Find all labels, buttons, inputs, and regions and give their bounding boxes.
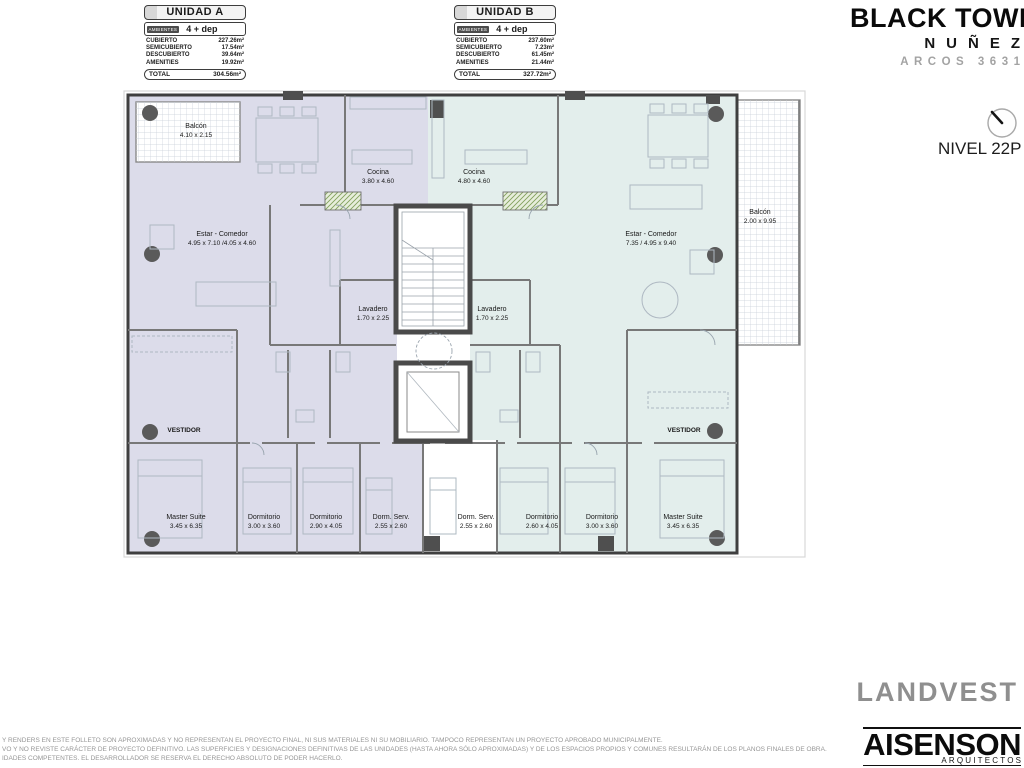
room-label-a-vestidor: VESTIDOR xyxy=(167,427,201,434)
area-row-value: 19.92m² xyxy=(222,60,244,67)
room-dims-a-dorm1: 3.00 x 3.60 xyxy=(248,523,281,530)
room-dims-a-master: 3.45 x 6.35 xyxy=(170,523,203,530)
disclaimer-line: VO Y NO REVISTE CARÁCTER DE PROYECTO DEF… xyxy=(2,746,827,753)
ambientes-value: 4 + dep xyxy=(186,24,217,34)
unit-b-total-row: TOTAL 327.72m² xyxy=(454,69,556,80)
room-dims-b-lavadero: 1.70 x 2.25 xyxy=(476,315,509,322)
room-dims-b-dormserv: 2.55 x 2.60 xyxy=(460,523,493,530)
area-row: DESCUBIERTO 61.45m² xyxy=(456,52,554,59)
room-label-b-dorm2: Dormitorio xyxy=(586,514,618,521)
area-row-label: AMENITIES xyxy=(456,60,489,67)
room-dims-b-balcon: 2.00 x 9.95 xyxy=(744,218,777,225)
unit-a-total-row: TOTAL 304.56m² xyxy=(144,69,246,80)
room-dims-a-dormserv: 2.55 x 2.60 xyxy=(375,523,408,530)
project-title: BLACK TOWER xyxy=(850,4,1020,33)
unit-a-area-rows: CUBIERTO 227.26m² SEMICUBIERTO 17.54m² D… xyxy=(144,36,246,68)
room-label-b-balcon: Balcón xyxy=(749,209,771,216)
room-dims-a-estar: 4.95 x 7.10 /4.05 x 4.60 xyxy=(188,240,256,247)
room-label-b-lavadero: Lavadero xyxy=(477,306,506,313)
ambientes-label: AMBIENTES xyxy=(457,26,490,33)
room-label-b-vestidor: VESTIDOR xyxy=(667,427,701,434)
unit-a-title: UNIDAD A xyxy=(144,5,246,20)
divider xyxy=(863,765,1021,766)
room-label-a-lavadero: Lavadero xyxy=(358,306,387,313)
unit-b-ambientes-row: AMBIENTES 4 + dep xyxy=(454,22,556,36)
disclaimer-line: IDADES COMPETENTES. EL DESARROLLADOR SE … xyxy=(2,755,343,762)
planter-b xyxy=(503,192,547,210)
room-label-a-estar: Estar - Comedor xyxy=(196,231,248,238)
level-label: NIVEL 22P xyxy=(938,139,1021,159)
area-row-label: CUBIERTO xyxy=(146,38,177,45)
area-row-label: SEMICUBIERTO xyxy=(146,45,192,52)
unit-b-title: UNIDAD B xyxy=(454,5,556,20)
area-row-value: 61.45m² xyxy=(532,52,554,59)
room-label-b-cocina: Cocina xyxy=(463,169,485,176)
room-label-b-dorm1: Dormitorio xyxy=(526,514,558,521)
room-label-a-dorm2: Dormitorio xyxy=(310,514,342,521)
area-row-label: AMENITIES xyxy=(146,60,179,67)
floor-plan: Balcón 4.10 x 2.15 Estar - Comedor 4.95 … xyxy=(0,0,1024,768)
area-row-value: 21.44m² xyxy=(532,60,554,67)
ambientes-label: AMBIENTES xyxy=(147,26,180,33)
project-brand: BLACK TOWER NUÑEZ ARCOS 3631 xyxy=(850,4,1020,70)
disclaimer-line: Y RENDERS EN ESTE FOLLETO SON APROXIMADA… xyxy=(2,737,663,744)
area-row: AMENITIES 21.44m² xyxy=(456,60,554,67)
room-label-a-dormserv: Dorm. Serv. xyxy=(373,514,410,521)
unit-b-area-rows: CUBIERTO 237.60m² SEMICUBIERTO 7.23m² DE… xyxy=(454,36,556,68)
aisenson-logo: AISENSON ARQUITECTOS xyxy=(863,729,1021,765)
area-row-label: DESCUBIERTO xyxy=(146,52,190,59)
project-address: ARCOS 3631 xyxy=(850,55,1024,70)
room-dims-b-cocina: 4.80 x 4.60 xyxy=(458,178,491,185)
room-dims-a-dorm2: 2.90 x 4.05 xyxy=(310,523,343,530)
area-row-label: SEMICUBIERTO xyxy=(456,45,502,52)
area-row: DESCUBIERTO 39.64m² xyxy=(146,52,244,59)
room-label-b-estar: Estar - Comedor xyxy=(625,231,677,238)
room-label-a-master: Master Suite xyxy=(166,514,205,521)
unit-b-table: UNIDAD B AMBIENTES 4 + dep CUBIERTO 237.… xyxy=(454,5,556,80)
total-value: 304.56m² xyxy=(213,71,241,78)
north-compass-icon xyxy=(985,106,1019,140)
room-label-a-balcon: Balcón xyxy=(185,123,207,130)
area-row-label: DESCUBIERTO xyxy=(456,52,500,59)
unit-a-table: UNIDAD A AMBIENTES 4 + dep CUBIERTO 227.… xyxy=(144,5,246,80)
ambientes-value: 4 + dep xyxy=(496,24,527,34)
total-value: 327.72m² xyxy=(523,71,551,78)
total-label: TOTAL xyxy=(149,71,170,78)
area-row-value: 39.64m² xyxy=(222,52,244,59)
room-dims-a-cocina: 3.80 x 4.60 xyxy=(362,178,395,185)
room-dims-b-estar: 7.35 / 4.95 x 9.40 xyxy=(626,240,677,247)
room-dims-b-master: 3.45 x 6.35 xyxy=(667,523,700,530)
room-dims-b-dorm2: 3.00 x 3.60 xyxy=(586,523,619,530)
unit-a-ambientes-row: AMBIENTES 4 + dep xyxy=(144,22,246,36)
area-row-label: CUBIERTO xyxy=(456,38,487,45)
room-dims-b-dorm1: 2.60 x 4.05 xyxy=(526,523,559,530)
elevator-core xyxy=(396,363,470,441)
room-label-b-master: Master Suite xyxy=(663,514,702,521)
room-label-b-dormserv: Dorm. Serv. xyxy=(458,514,495,521)
room-label-a-cocina: Cocina xyxy=(367,169,389,176)
room-dims-a-balcon: 4.10 x 2.15 xyxy=(180,132,213,139)
brochure-page: Balcón 4.10 x 2.15 Estar - Comedor 4.95 … xyxy=(0,0,1024,768)
stair-core xyxy=(396,206,470,332)
total-label: TOTAL xyxy=(459,71,480,78)
room-dims-a-lavadero: 1.70 x 2.25 xyxy=(357,315,390,322)
landvest-logo: LANDVEST xyxy=(856,677,1018,708)
room-label-a-dorm1: Dormitorio xyxy=(248,514,280,521)
project-subtitle: NUÑEZ xyxy=(850,33,1024,55)
area-row: AMENITIES 19.92m² xyxy=(146,60,244,67)
